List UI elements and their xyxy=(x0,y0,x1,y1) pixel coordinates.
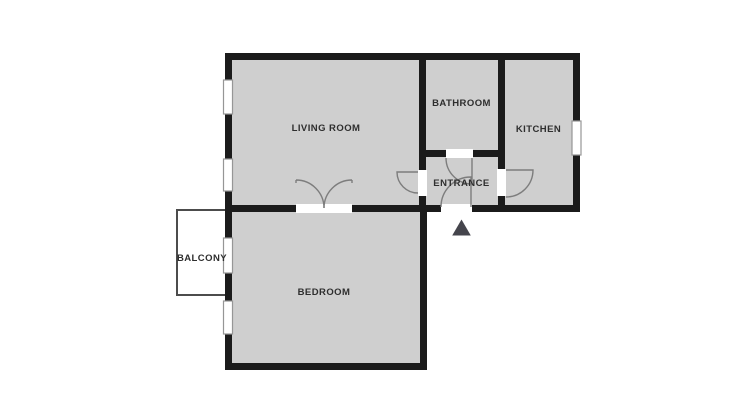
label-living-room: LIVING ROOM xyxy=(292,123,361,134)
label-bathroom: BATHROOM xyxy=(432,98,491,109)
label-balcony: BALCONY xyxy=(177,253,227,264)
label-bedroom: BEDROOM xyxy=(298,287,351,298)
wall-middle-horizontal xyxy=(225,205,580,212)
wall-bedroom-bottom xyxy=(225,363,427,370)
window-kitchen xyxy=(572,121,581,155)
floor-plan-canvas: LIVING ROOM BATHROOM KITCHEN ENTRANCE BE… xyxy=(0,0,736,418)
label-kitchen: KITCHEN xyxy=(516,124,561,135)
window-bedroom xyxy=(224,301,233,334)
opening-living-entrance xyxy=(418,170,427,196)
wall-top-exterior xyxy=(225,53,580,60)
opening-kitchen xyxy=(497,169,506,196)
wall-bedroom-right xyxy=(420,212,427,370)
label-entrance: ENTRANCE xyxy=(433,178,489,189)
floor-plan-stage: LIVING ROOM BATHROOM KITCHEN ENTRANCE BE… xyxy=(0,0,736,418)
opening-bathroom xyxy=(446,149,473,158)
window-living-room-lower xyxy=(224,159,233,191)
opening-main-entry xyxy=(441,204,472,213)
wall-bedroom-left xyxy=(225,212,232,370)
window-living-room-upper xyxy=(224,80,233,114)
entrance-arrow-icon xyxy=(452,220,471,236)
